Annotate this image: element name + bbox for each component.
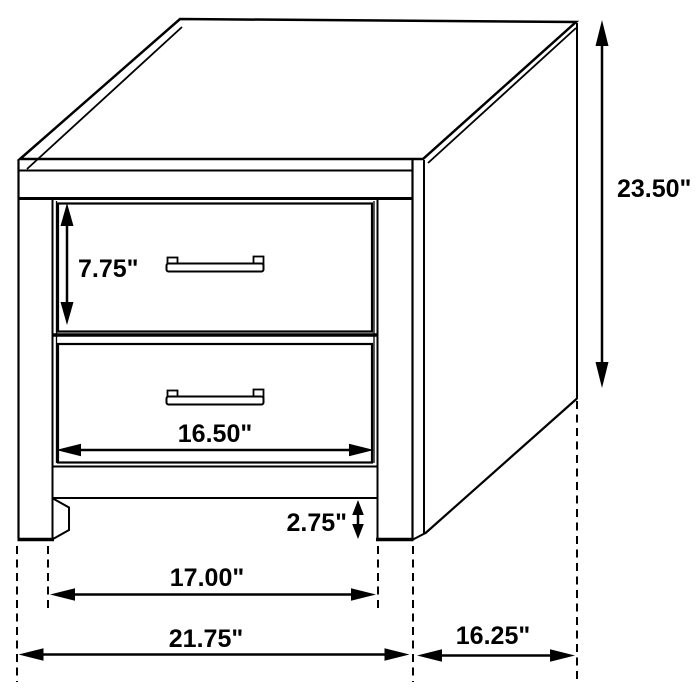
arrowhead-up-icon (352, 500, 364, 515)
dim-label-overall-depth: 16.25" (456, 622, 530, 650)
dimension-overall-height: 23.50" (596, 20, 692, 388)
dimension-overall-depth: 16.25" (417, 622, 575, 662)
dim-label-overall-width: 21.75" (169, 625, 243, 653)
top-panel (19, 19, 576, 171)
arrowhead-down-icon (596, 362, 609, 388)
arrowhead-left-icon (50, 588, 75, 600)
handle-bar (167, 264, 264, 272)
dim-label-between-legs-width: 17.00" (170, 564, 244, 592)
dim-label-drawer-height: 7.75" (78, 255, 139, 283)
right-leg-side-bottom-edge (413, 533, 426, 540)
dimension-clearance-height: 2.75" (286, 500, 363, 539)
left-leg-inner-face (53, 499, 69, 540)
arrowhead-right-icon (351, 588, 376, 600)
diagram-canvas: 7.75" 16.50" 2.75" 17.00" 21.75" 16.25" (0, 0, 700, 700)
arrowhead-down-icon (352, 524, 364, 539)
handle-bar (167, 397, 264, 405)
arrowhead-right-icon (385, 648, 410, 660)
dim-label-drawer-width: 16.50" (178, 420, 252, 448)
legs (18, 499, 426, 540)
nightstand-dimension-drawing: 7.75" 16.50" 2.75" 17.00" 21.75" 16.25" (0, 0, 700, 700)
dimension-overall-width: 21.75" (19, 625, 410, 661)
dimension-between-legs-width: 17.00" (50, 564, 376, 601)
arrowhead-up-icon (596, 20, 609, 46)
arrowhead-left-icon (19, 648, 44, 660)
arrowhead-right-icon (550, 649, 575, 661)
dim-label-clearance-height: 2.75" (286, 509, 347, 537)
arrowhead-left-icon (417, 649, 442, 661)
dim-label-overall-height: 23.50" (617, 175, 691, 203)
top-surface (20, 19, 576, 159)
side-bottom-edge (425, 399, 577, 534)
